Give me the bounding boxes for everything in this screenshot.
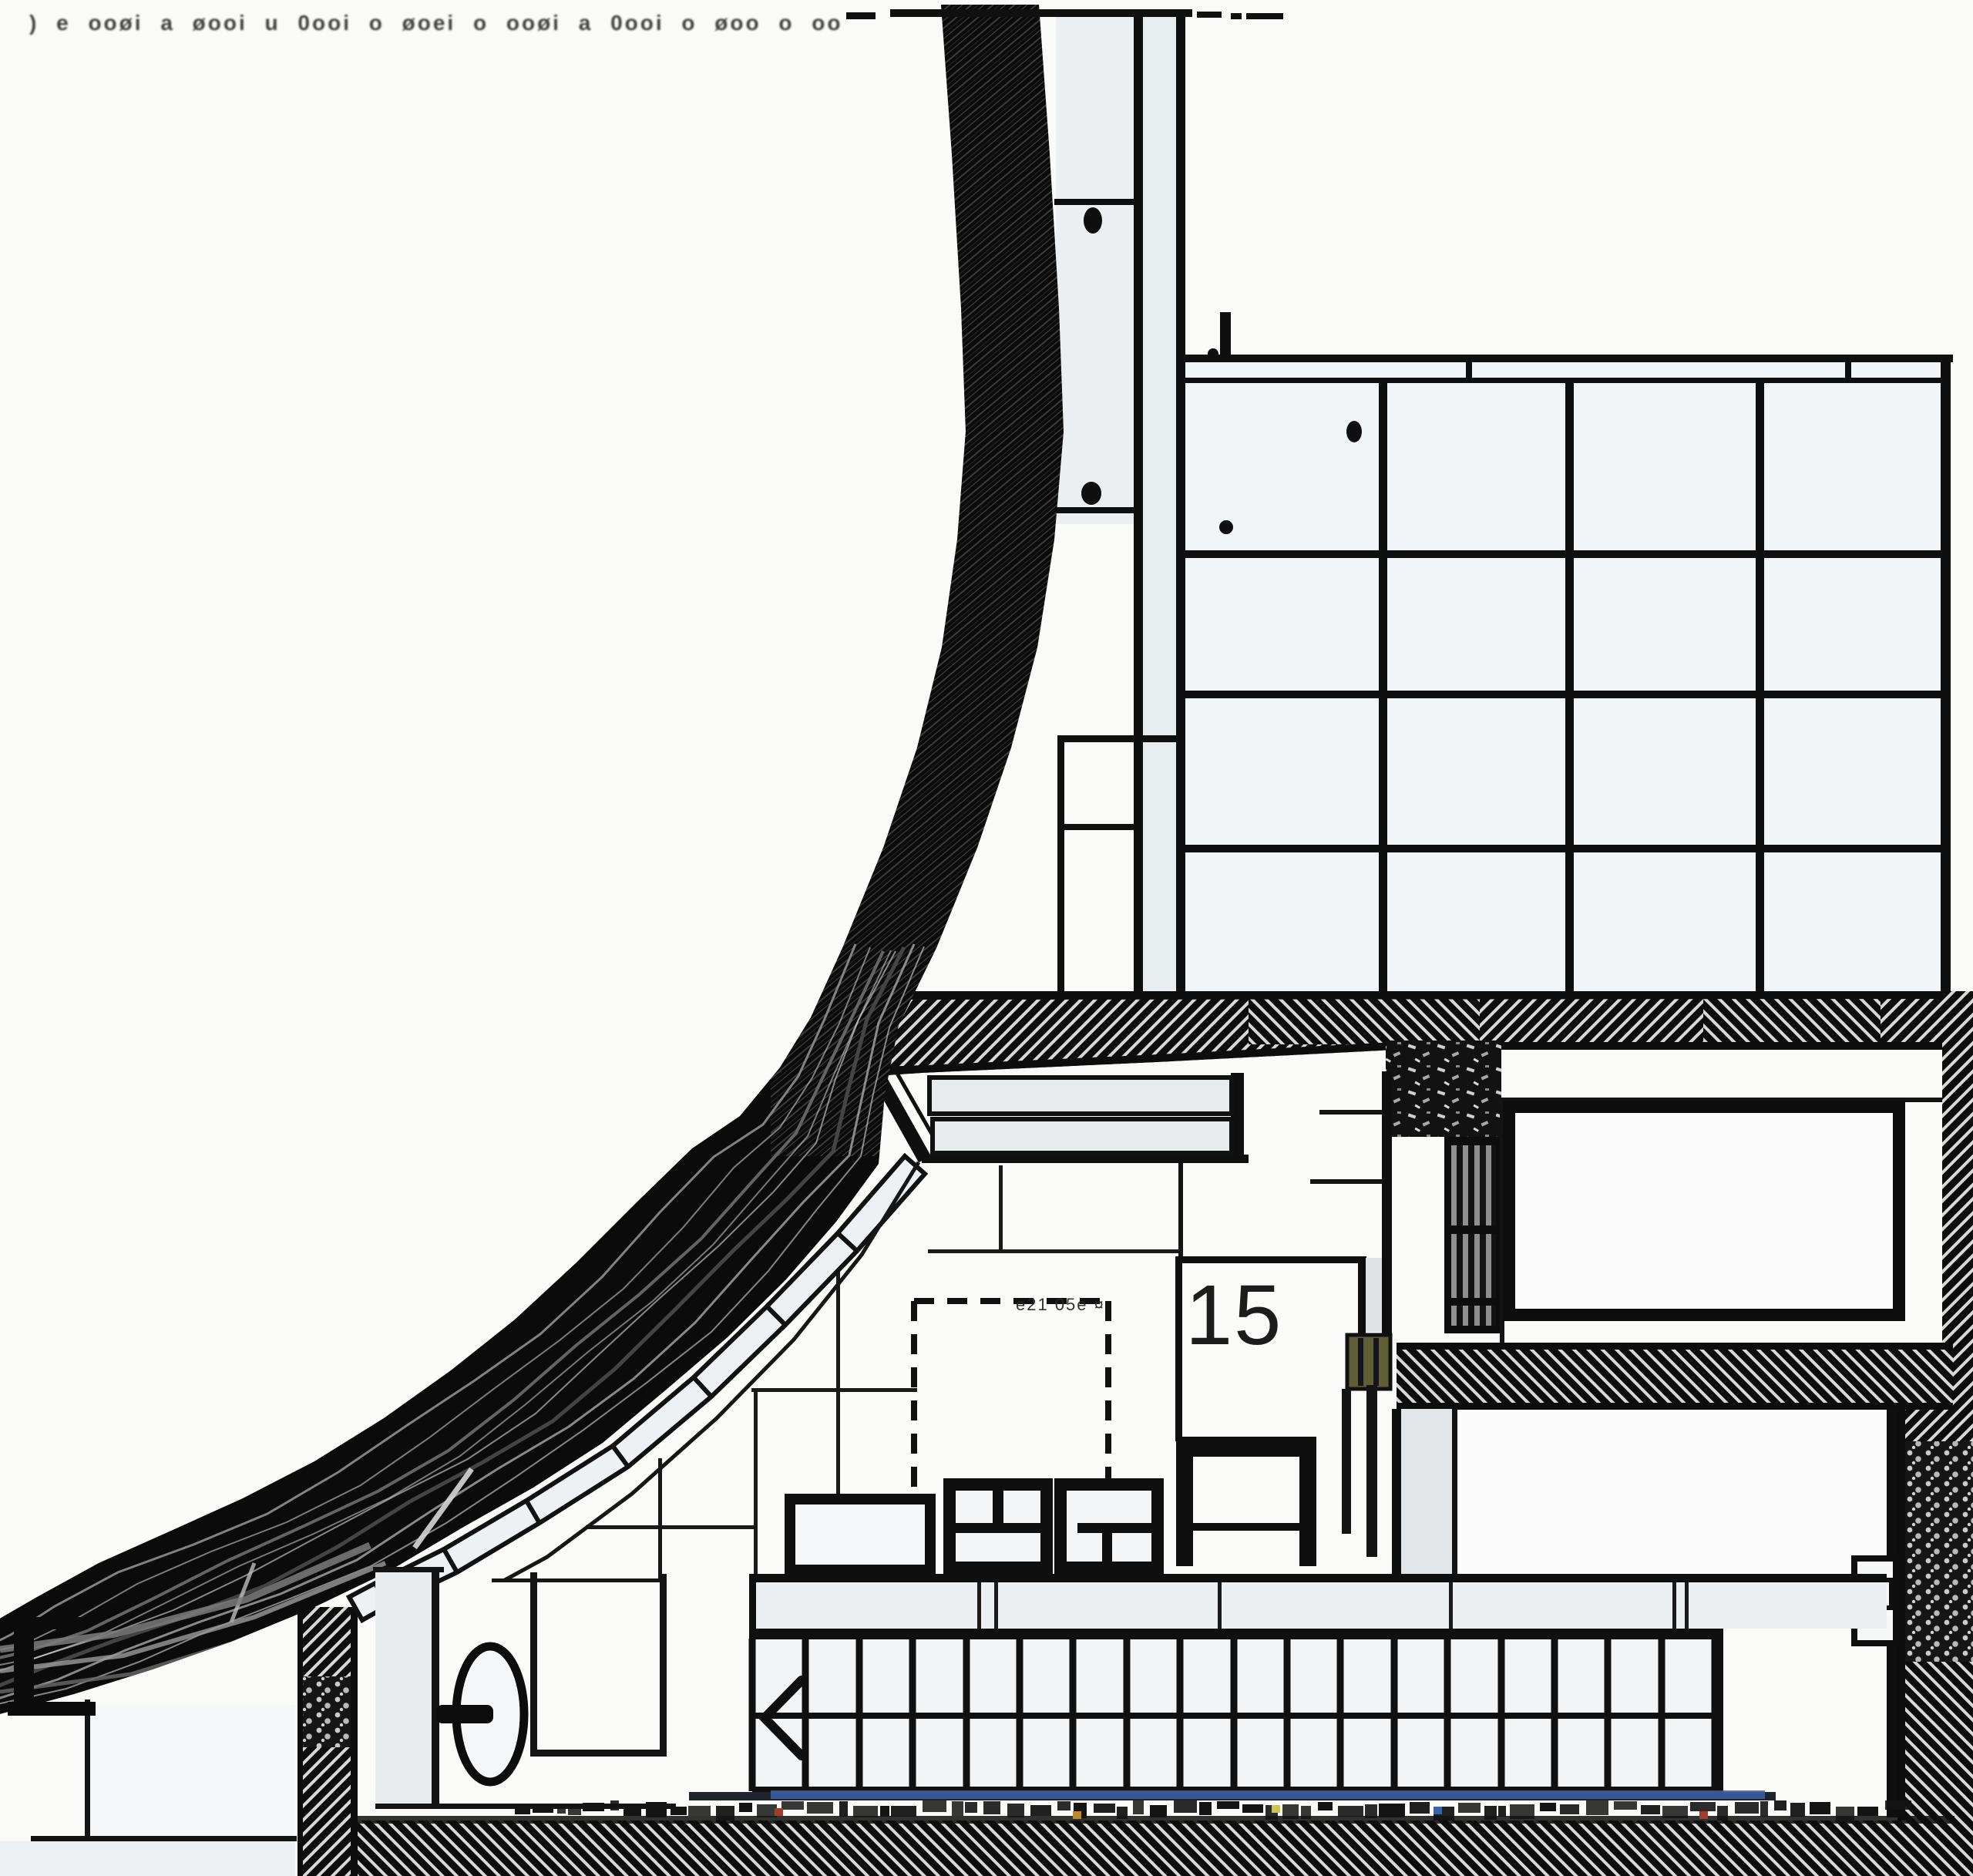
svg-text:15: 15 [1185,1268,1282,1363]
svg-text:) e ooøi a øooi u 0ooi o øo: ) e ooøi a øooi u 0ooi o øoei o ooøi a 0… [29,11,843,35]
svg-text:e21 05e ¤: e21 05e ¤ [1016,1295,1105,1314]
